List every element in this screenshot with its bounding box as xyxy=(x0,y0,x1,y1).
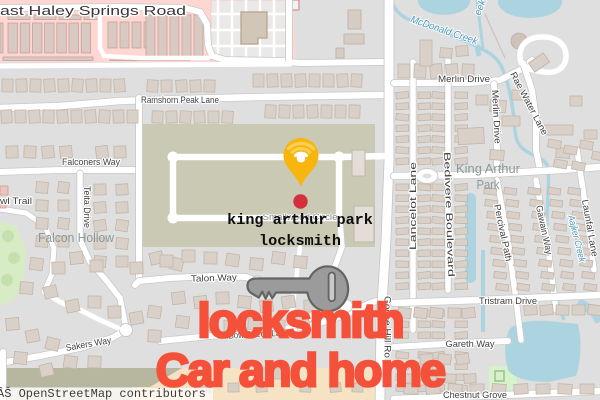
svg-text:Talon Way: Talon Way xyxy=(191,272,238,284)
svg-text:Gareth Way: Gareth Way xyxy=(446,339,495,349)
svg-text:Lancelot Lane: Lancelot Lane xyxy=(408,162,418,250)
svg-text:Merlin Drive: Merlin Drive xyxy=(438,74,490,84)
svg-text:wl Trail: wl Trail xyxy=(0,196,32,206)
svg-text:Teita Drive: Teita Drive xyxy=(82,186,92,228)
svg-text:Falconers Way: Falconers Way xyxy=(62,157,120,167)
svg-text:Tristram Drive: Tristram Drive xyxy=(479,296,537,306)
svg-text:Falcon Hollow: Falcon Hollow xyxy=(38,230,115,245)
svg-text:Park: Park xyxy=(477,177,500,192)
svg-text:ast Haley Springs Road: ast Haley Springs Road xyxy=(0,3,186,18)
svg-text:King Arthur: King Arthur xyxy=(456,161,521,176)
svg-text:Chestnut Grove: Chestnut Grove xyxy=(443,390,507,400)
svg-text:Ramshorn Peak Lane: Ramshorn Peak Lane xyxy=(141,95,219,105)
